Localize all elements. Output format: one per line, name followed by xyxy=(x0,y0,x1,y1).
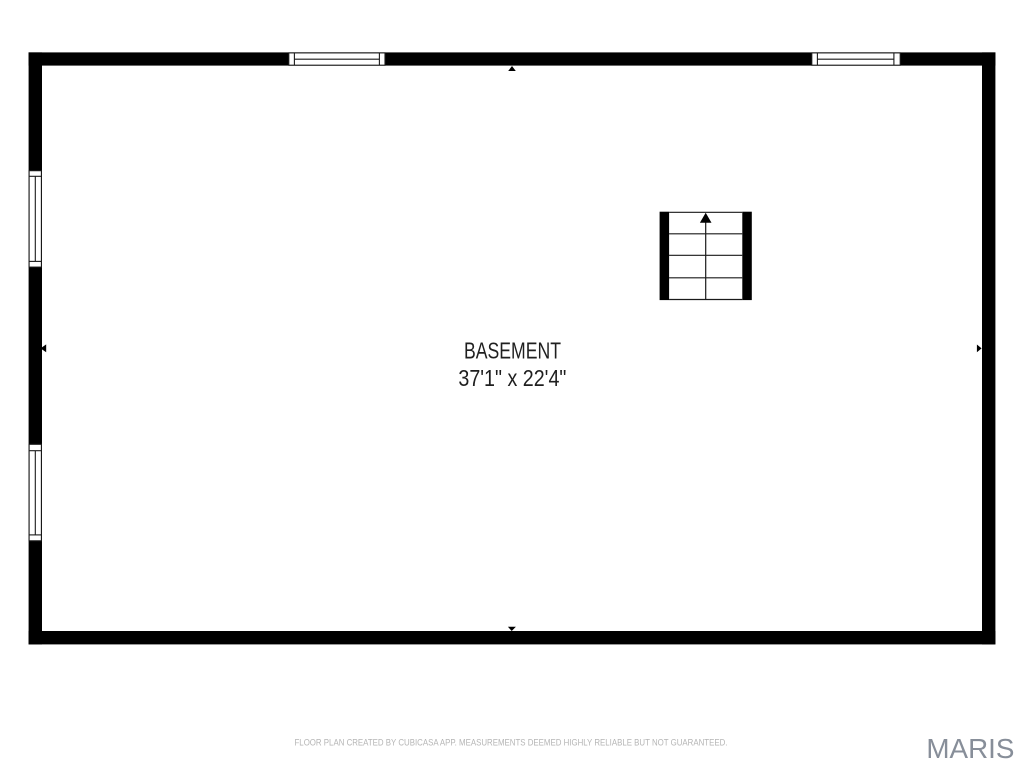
svg-text:FLOOR PLAN CREATED BY CUBICASA: FLOOR PLAN CREATED BY CUBICASA APP. MEAS… xyxy=(295,737,728,748)
svg-text:BASEMENT: BASEMENT xyxy=(464,338,561,364)
svg-text:37'1" x 22'4": 37'1" x 22'4" xyxy=(458,365,566,391)
svg-text:MARIS: MARIS xyxy=(926,732,1014,764)
